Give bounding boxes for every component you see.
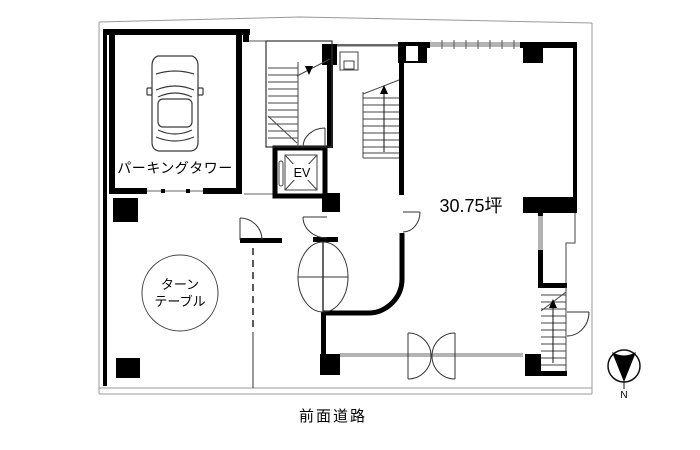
door (403, 212, 420, 232)
turntable-label-line2: テーブル (154, 294, 205, 309)
turntable-circle (142, 255, 218, 331)
door (240, 218, 262, 240)
north-arrow (612, 352, 636, 382)
car-icon (147, 56, 203, 151)
stair-straight (363, 80, 399, 158)
column (116, 358, 140, 378)
floor-plan: パーキングタワー ターン テーブル EV (0, 0, 700, 450)
window-top (430, 42, 520, 47)
turntable-label-line1: ターン (161, 277, 199, 292)
window-front (340, 353, 523, 357)
elevator: EV (275, 148, 325, 196)
parking-tower-label: パーキングタワー (117, 160, 233, 176)
stair-bottom-right (538, 283, 589, 376)
stair-direction-arrow (380, 85, 388, 94)
door (303, 217, 327, 238)
door (567, 312, 589, 336)
curved-wall (323, 233, 402, 313)
elevator-label: EV (294, 166, 311, 180)
main-room: 30.75坪 (408, 196, 503, 379)
sink-fixture (340, 52, 358, 70)
door (303, 128, 325, 147)
stair-direction-arrow (305, 66, 313, 75)
front-road-label: 前面道路 (299, 408, 367, 425)
compass-north-label: N (620, 390, 627, 401)
column (523, 42, 543, 63)
compass-icon: N (608, 350, 640, 401)
parking-tower-room: パーキングタワー (109, 29, 275, 194)
area-label: 30.75坪 (439, 196, 502, 216)
column (113, 198, 138, 222)
exterior-step-outline (566, 213, 575, 284)
double-swing-door (298, 242, 348, 312)
window-right (538, 216, 543, 250)
column (320, 354, 340, 375)
column (525, 354, 541, 376)
site-boundary (99, 17, 592, 394)
floor-plan-drawing: パーキングタワー ターン テーブル EV (0, 0, 700, 450)
turntable-area: ターン テーブル (142, 218, 262, 388)
